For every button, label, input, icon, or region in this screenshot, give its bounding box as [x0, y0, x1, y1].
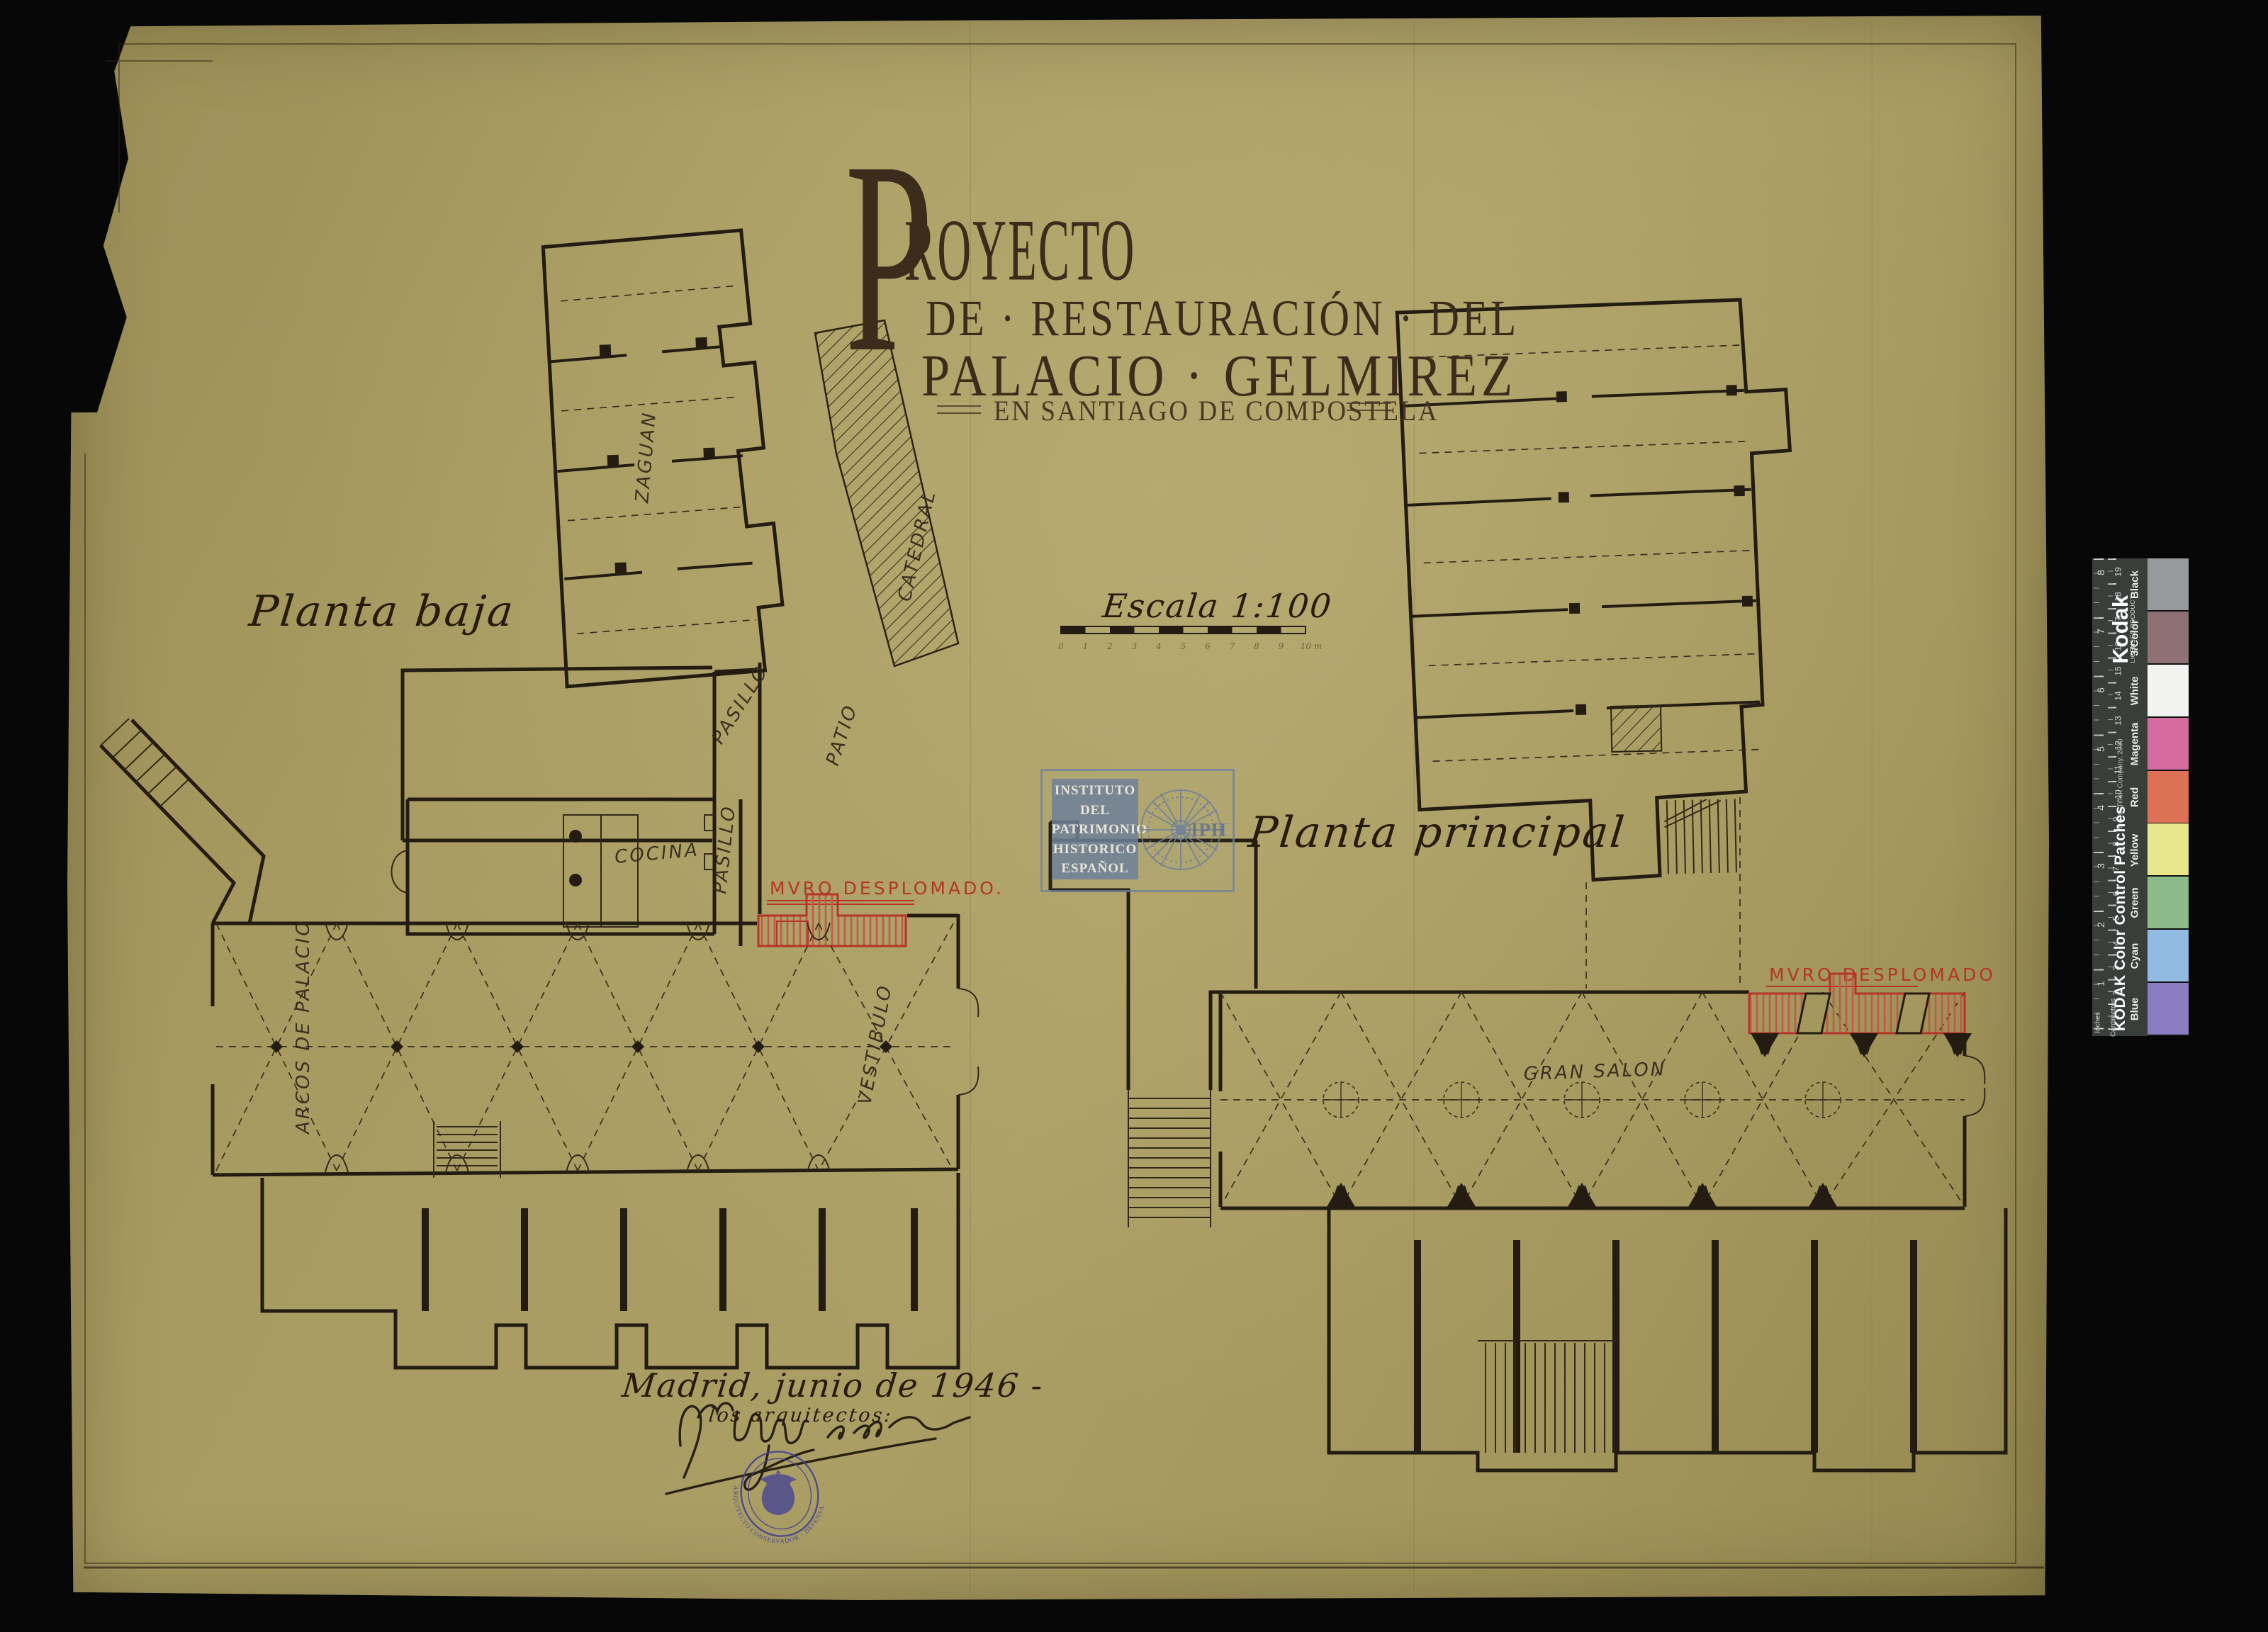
room-label-vestibulo: VESTIBULO [854, 982, 896, 1106]
room-label-zaguan: ZAGUAN [631, 410, 661, 505]
scale-tick-label: 6 [1205, 641, 1211, 651]
kodak-patch-magenta [2148, 718, 2189, 770]
right-lower-rooms [1329, 1208, 2006, 1470]
caption-scale: Escala 1:100 [1101, 587, 1334, 625]
scale-tick-label: 0 [1058, 641, 1064, 651]
iphe-line: DEL [1052, 801, 1138, 821]
kodak-patch-label: Yellow [2129, 833, 2141, 867]
seal-eagle: PRIMERA [0, 0, 797, 1515]
caption-planta-baja: Planta baja [247, 587, 517, 636]
iphe-acronym: IPHE [1191, 819, 1228, 840]
left-middle-rooms: PASILLO PATIO COCINA PASILLO [392, 661, 863, 946]
caption-planta-principal: Planta principal [1246, 808, 1628, 857]
left-upper-wing: ZAGUAN [543, 229, 785, 687]
kodak-patch-blue [2148, 983, 2189, 1035]
iphe-rosette-icon: IPHE [1140, 777, 1228, 883]
room-label-arcos: ARCOS DE PALACIO [293, 919, 314, 1135]
scale-segment [1110, 626, 1135, 634]
left-gallery: ARCOS DE PALACIO VESTIBULO [213, 914, 978, 1175]
muro-desplomado-left: MVRO DESPLOMADO. [758, 878, 1004, 946]
kodak-patch-label: Red [2129, 787, 2141, 806]
room-label-gran-salon: GRAN SALON [1523, 1059, 1667, 1085]
scale-segment [1159, 626, 1184, 634]
kodak-patch-label: Green [2129, 888, 2141, 918]
iphe-line: ESPAÑOL [1052, 859, 1138, 879]
iphe-line: PATRIMONIO [1052, 820, 1138, 840]
room-label-cocina: COCINA [614, 840, 700, 868]
kodak-patch-column [2148, 558, 2189, 1036]
kodak-patch-label: Cyan [2129, 943, 2141, 969]
kodak-patch-label: Black [2129, 570, 2141, 599]
kodak-patch-white [2148, 665, 2189, 716]
title-dash-left [937, 405, 981, 414]
kodak-patch-label: Magenta [2129, 722, 2141, 765]
scale-segment [1257, 626, 1281, 634]
scale-tick-label: 5 [1181, 641, 1186, 651]
kodak-patch-black [2148, 558, 2189, 610]
kodak-patch-label: Blue [2129, 998, 2141, 1021]
room-label-patio: PATIO [822, 702, 862, 768]
left-lower-rooms [262, 1121, 958, 1368]
signature-underline [666, 1439, 936, 1494]
kodak-color-strip: 1234567891011121314151617181912345678 Ko… [2092, 558, 2189, 1036]
scale-tick-label: 9 [1279, 641, 1284, 651]
kodak-patch-cyan [2148, 930, 2189, 981]
scale-tick-label: 8 [1254, 641, 1259, 651]
seal-text-ring: ARQUITECTO CONSERVADOR · DEFENSA DEL PAT… [0, 0, 826, 1545]
kodak-patch-label: White [2129, 676, 2141, 705]
architects-caption: los arquitectos: [707, 1405, 894, 1426]
scale-segment [1061, 626, 1086, 634]
iphe-line: INSTITUTO [1052, 781, 1138, 801]
scale-tick-label: 4 [1155, 641, 1162, 651]
scale-segment [1208, 626, 1233, 634]
scale-end-label: 10 m [1301, 641, 1322, 651]
iphe-stamp-textbox: INSTITUTO DEL PATRIMONIO HISTORICO ESPAÑ… [1052, 779, 1138, 879]
damage-label-left: MVRO DESPLOMADO. [770, 878, 1004, 899]
scale-tick-label: 3 [1132, 641, 1138, 651]
iphe-stamp: INSTITUTO DEL PATRIMONIO HISTORICO ESPAÑ… [1040, 769, 1235, 892]
muro-desplomado-right: MVRO DESPLOMADO [1749, 964, 1996, 1057]
kodak-label-column: Black3/ColorWhiteMagentaRedYellowGreenCy… [2092, 558, 2148, 1036]
left-entrance-stairs [101, 719, 264, 923]
kodak-patch-red [2148, 771, 2189, 823]
date-line: Madrid, junio de 1946 - [620, 1366, 1045, 1405]
scanned-drawing: ZAGUAN CATEDRAL PASILLO PATIO COCINA PAS… [0, 0, 2268, 1632]
kodak-patch-yellow [2148, 823, 2189, 875]
kodak-patch-label: 3/Color [2129, 619, 2141, 656]
title-dash-right [1347, 403, 1391, 411]
seal-text-top: PRIMERA [0, 0, 33, 1]
scale-tick-label: 1 [1083, 641, 1089, 651]
title-word: ROYECTO [904, 200, 1136, 301]
scale-bar: 012345678910 m [1058, 626, 1322, 651]
kodak-patch-green [2148, 877, 2189, 928]
damage-label-right: MVRO DESPLOMADO [1769, 964, 1996, 985]
iphe-line: HISTORICO [1052, 840, 1138, 860]
kodak-patch-3-color [2148, 612, 2189, 663]
title-line-2: DE · RESTAURACIÓN · DEL [926, 289, 1519, 348]
scale-tick-label: 7 [1230, 641, 1235, 651]
scale-tick-label: 2 [1106, 641, 1113, 651]
